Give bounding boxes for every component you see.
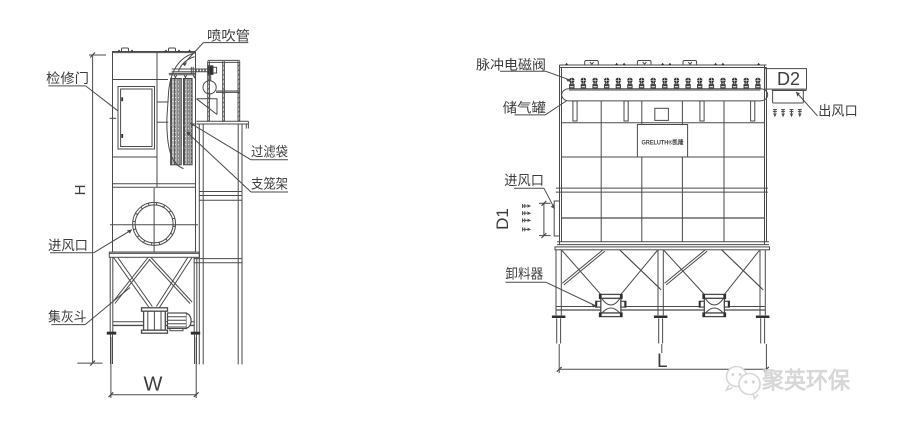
svg-text:卸料器: 卸料器 [505, 267, 543, 282]
svg-text:W: W [144, 374, 163, 396]
svg-text:聚英环保: 聚英环保 [761, 367, 851, 393]
svg-text:出风口: 出风口 [818, 104, 857, 119]
svg-text:集灰斗: 集灰斗 [48, 310, 87, 325]
svg-text:GRELUTH®凯隆: GRELUTH®凯隆 [642, 139, 685, 147]
svg-text:支笼架: 支笼架 [251, 176, 288, 192]
svg-text:进风口: 进风口 [48, 238, 88, 253]
svg-text:脉冲电磁阀: 脉冲电磁阀 [476, 58, 546, 73]
svg-text:过滤袋: 过滤袋 [251, 145, 288, 160]
svg-text:L: L [657, 351, 668, 372]
svg-text:D1: D1 [493, 208, 512, 230]
svg-text:喷吹管: 喷吹管 [207, 29, 250, 44]
svg-text:进风口: 进风口 [504, 173, 544, 188]
svg-text:D2: D2 [777, 69, 800, 89]
svg-text:H: H [72, 185, 89, 196]
svg-text:检修门: 检修门 [46, 71, 89, 86]
svg-text:储气罐: 储气罐 [503, 101, 547, 116]
